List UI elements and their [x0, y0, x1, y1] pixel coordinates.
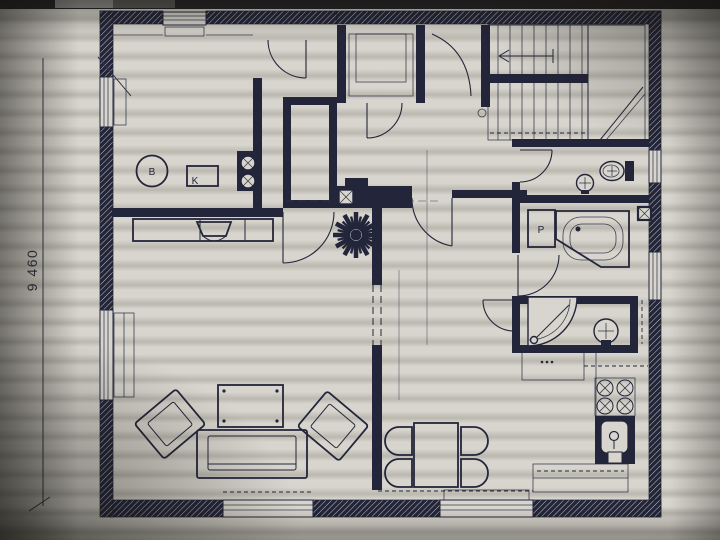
- window-left-utility: [100, 77, 126, 127]
- window-right-wc: [649, 150, 661, 183]
- corner-bathtub: [556, 211, 629, 267]
- wc-washbasin: [577, 175, 594, 195]
- armchair-right: [298, 391, 369, 461]
- up-arrow: [499, 49, 553, 63]
- door-dining-hall: [412, 198, 452, 246]
- dimension-label: 9 460: [24, 249, 40, 292]
- photo-top-bar: [0, 0, 720, 9]
- interior-walls: [112, 25, 649, 490]
- vestibule: [349, 34, 413, 96]
- window-top: [163, 12, 206, 36]
- dining-table: [414, 423, 458, 487]
- dining-chairs: [385, 427, 488, 487]
- chimney-flue: [339, 190, 353, 204]
- door-wc: [520, 150, 552, 182]
- door-living: [283, 212, 334, 263]
- top-bar-tab-1: [55, 0, 113, 8]
- door-utility: [268, 40, 306, 78]
- door-bathroom: [518, 255, 559, 296]
- utility-room: B K: [137, 151, 260, 191]
- armchair-left: [135, 389, 206, 459]
- kitchen-stove: [595, 378, 635, 416]
- kitchen: [522, 352, 648, 492]
- coffee-table: [218, 385, 283, 427]
- window-right-bathroom: [649, 252, 661, 300]
- door-shower: [483, 300, 514, 331]
- photo-of-floor-plan: B K: [0, 0, 720, 540]
- tv-cabinet: [133, 219, 273, 241]
- top-bar-tab-2: [113, 0, 175, 8]
- shower-room: [528, 297, 618, 346]
- boiler-circle: B: [137, 156, 168, 187]
- kitchen-sink: [595, 416, 635, 464]
- washing-machine: P: [528, 210, 555, 247]
- flue-unit: [237, 151, 259, 191]
- window-bottom-living: [223, 492, 313, 517]
- dining-area: [385, 423, 488, 487]
- living-room: [133, 219, 368, 478]
- door-stair-hall: [432, 34, 471, 96]
- wc: [577, 161, 635, 194]
- washing-machine-label: P: [538, 225, 545, 236]
- toilet: [600, 161, 634, 181]
- door-vestibule: [367, 103, 402, 138]
- staircase: [478, 25, 645, 140]
- shower-cabin: [528, 297, 577, 346]
- boiler-box-label: K: [192, 176, 199, 187]
- vent-grille: [638, 207, 651, 220]
- shower-washbasin: [594, 319, 618, 345]
- floor-plan-drawing: B K: [0, 0, 720, 540]
- boiler-box: K: [187, 166, 218, 187]
- closet: [287, 101, 333, 204]
- tv: [197, 222, 231, 241]
- boiler-label: B: [149, 167, 156, 178]
- sofa: [197, 430, 307, 478]
- bathroom: P: [528, 207, 651, 267]
- window-left-living: [100, 310, 134, 400]
